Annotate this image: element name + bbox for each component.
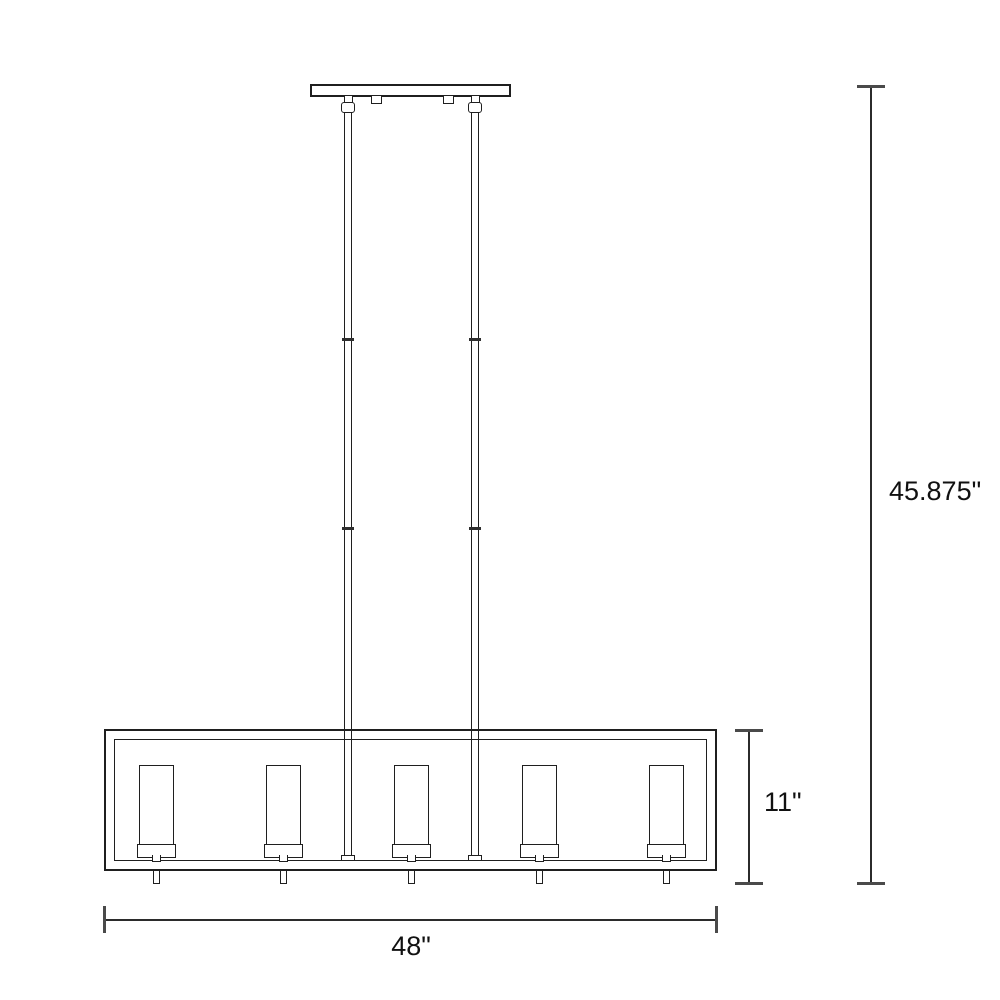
finial-stem: [408, 871, 415, 884]
socket-nipple: [152, 855, 161, 862]
downrod-joint: [469, 527, 481, 530]
overall-height-dimension-line: [870, 87, 872, 884]
body-height-dimension-line: [748, 730, 750, 883]
socket-nipple: [407, 855, 416, 862]
glass-shade: [522, 765, 557, 846]
dimension-cap: [735, 729, 763, 732]
glass-shade: [394, 765, 429, 846]
body-height-label: 11": [764, 789, 802, 816]
glass-shade: [649, 765, 684, 846]
downrod-joint: [342, 338, 354, 341]
dimension-cap: [103, 906, 106, 933]
glass-shade: [266, 765, 301, 846]
finial-stem: [280, 871, 287, 884]
dimension-diagram: 45.875" 11" 48": [0, 0, 1000, 1000]
finial-stem: [153, 871, 160, 884]
ceiling-canopy: [310, 84, 511, 97]
finial-stem: [663, 871, 670, 884]
downrod-joint: [342, 527, 354, 530]
body-width-dimension-line: [104, 919, 717, 921]
glass-shade: [139, 765, 174, 846]
socket-nipple: [662, 855, 671, 862]
body-width-label: 48": [381, 933, 441, 960]
finial-stem: [536, 871, 543, 884]
dimension-cap: [715, 906, 718, 933]
dimension-cap: [857, 882, 885, 885]
dimension-cap: [857, 85, 885, 88]
downrod-joint: [469, 338, 481, 341]
socket-nipple: [279, 855, 288, 862]
canopy-mount-tab: [443, 96, 454, 104]
socket-nipple: [535, 855, 544, 862]
canopy-mount-tab: [371, 96, 382, 104]
overall-height-label: 45.875": [889, 478, 981, 505]
dimension-cap: [735, 882, 763, 885]
